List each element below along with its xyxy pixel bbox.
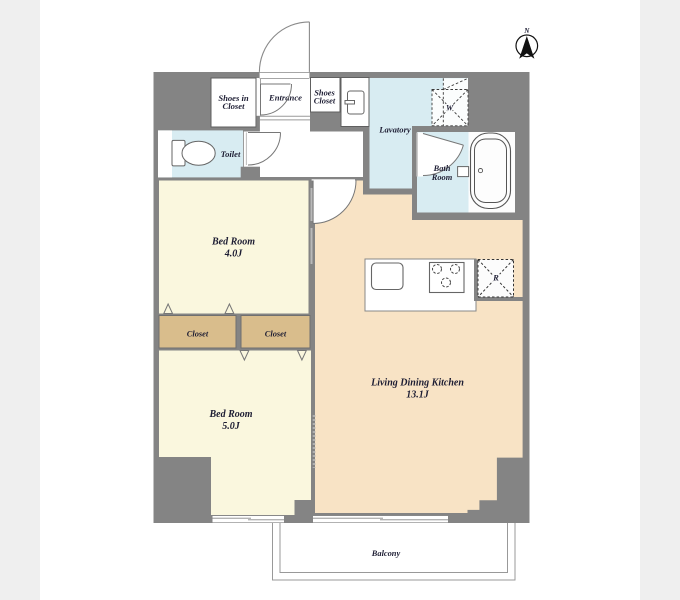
svg-text:R: R [492, 273, 499, 283]
svg-text:Bed Room: Bed Room [208, 409, 252, 420]
svg-text:Closet: Closet [223, 101, 246, 111]
svg-text:Closet: Closet [314, 97, 336, 106]
svg-text:Closet: Closet [265, 329, 287, 338]
svg-text:Room: Room [431, 173, 453, 182]
svg-text:Balcony: Balcony [371, 549, 401, 558]
svg-text:N: N [523, 27, 530, 35]
svg-text:Entrance: Entrance [268, 93, 302, 103]
svg-text:4.0J: 4.0J [224, 249, 244, 260]
svg-text:Bath: Bath [433, 164, 451, 173]
svg-text:Toilet: Toilet [221, 149, 241, 159]
svg-text:Closet: Closet [187, 329, 209, 338]
svg-text:13.1J: 13.1J [406, 390, 430, 401]
svg-text:Living Dining Kitchen: Living Dining Kitchen [370, 378, 464, 389]
svg-text:W: W [446, 104, 454, 113]
svg-text:5.0J: 5.0J [222, 421, 241, 432]
svg-text:Bed Room: Bed Room [211, 237, 255, 248]
svg-text:Lavatory: Lavatory [378, 125, 411, 135]
